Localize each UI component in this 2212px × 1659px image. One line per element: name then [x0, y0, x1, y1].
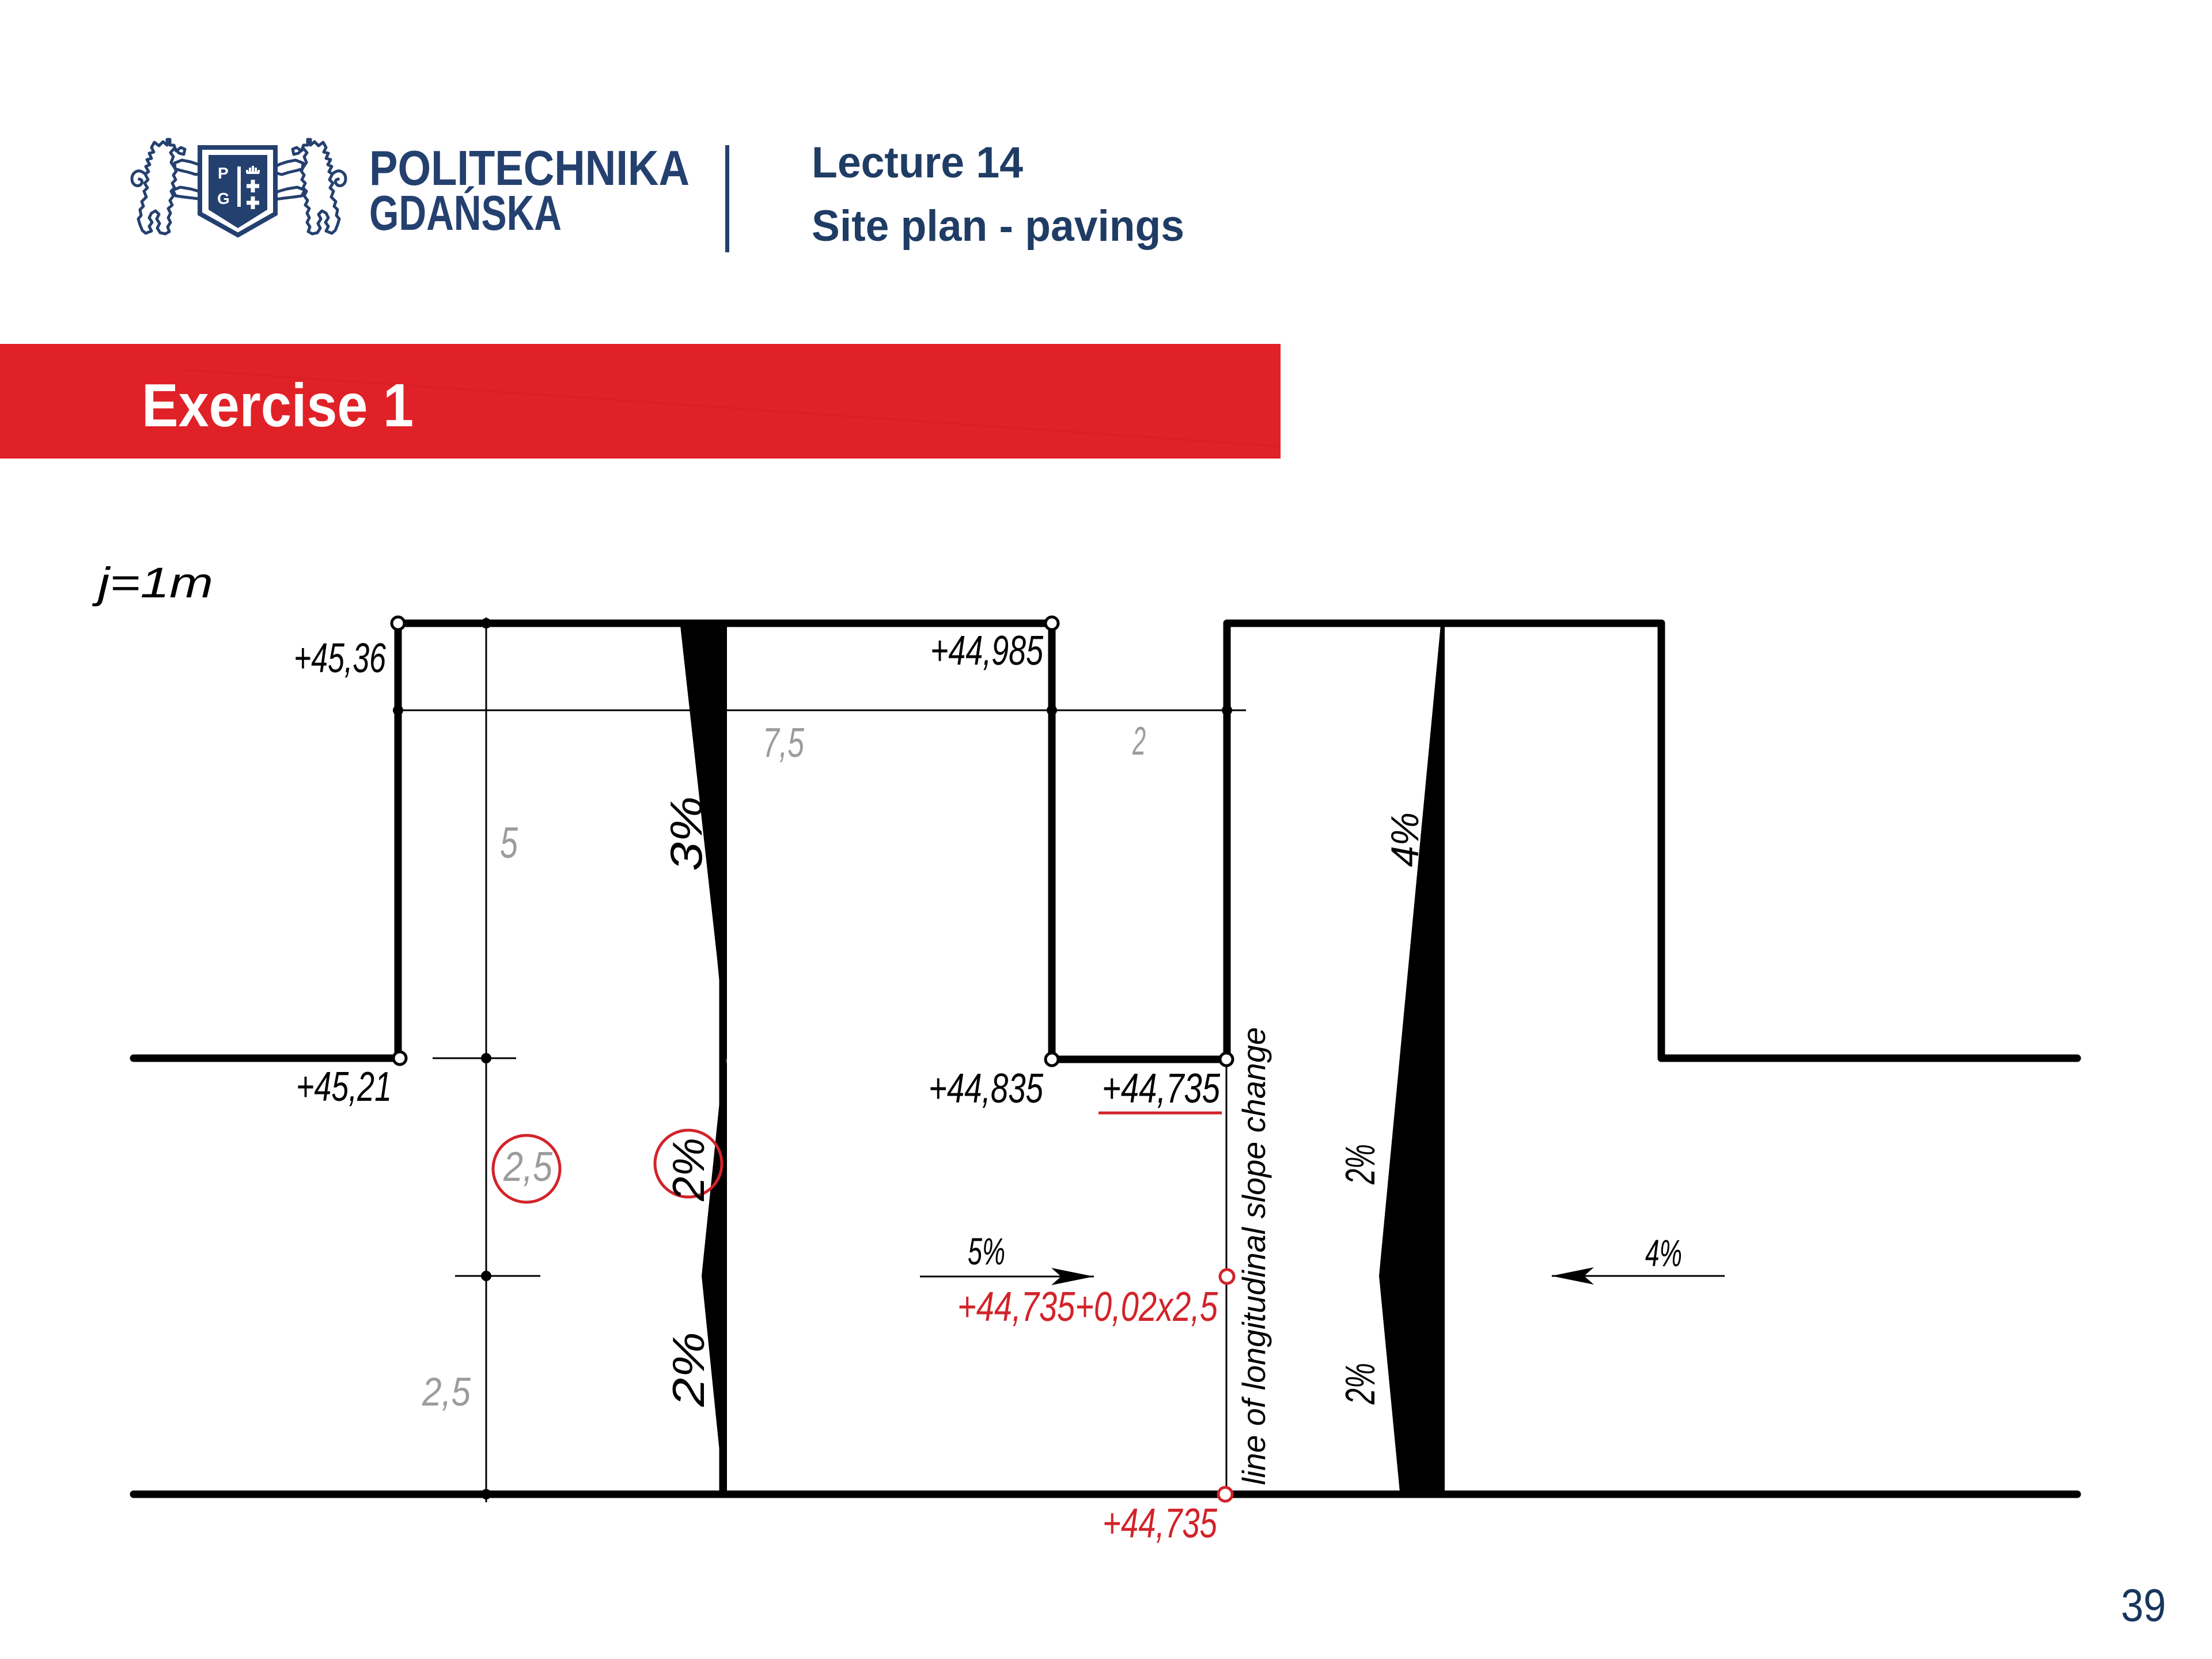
svg-text:line of longitudinal slope cha: line of longitudinal slope change [1236, 1027, 1272, 1485]
svg-text:Exercise 1: Exercise 1 [142, 372, 414, 440]
svg-text:G: G [217, 190, 230, 207]
svg-text:5%: 5% [968, 1230, 1005, 1272]
svg-text:2%: 2% [663, 1138, 714, 1202]
svg-text:2%: 2% [1338, 1144, 1384, 1185]
svg-text:2%: 2% [1338, 1363, 1384, 1405]
svg-text:+44,835: +44,835 [929, 1066, 1044, 1112]
svg-text:5: 5 [500, 819, 518, 868]
svg-text:+44,735: +44,735 [1102, 1066, 1221, 1112]
svg-text:+44,735: +44,735 [1103, 1501, 1218, 1547]
svg-text:+45,21: +45,21 [296, 1064, 392, 1110]
svg-text:4%: 4% [1645, 1232, 1682, 1274]
svg-text:+44,735+0,02x2,5: +44,735+0,02x2,5 [957, 1284, 1218, 1330]
svg-text:2%: 2% [663, 1332, 714, 1407]
svg-text:3%: 3% [661, 796, 711, 871]
svg-text:j=1m: j=1m [92, 559, 213, 607]
svg-text:4%: 4% [1383, 812, 1427, 867]
svg-text:7,5: 7,5 [763, 720, 805, 766]
svg-text:2: 2 [1132, 718, 1146, 763]
svg-text:GDAŃSKA: GDAŃSKA [369, 186, 562, 241]
svg-text:Lecture 14: Lecture 14 [812, 138, 1023, 187]
svg-text:+45,36: +45,36 [294, 635, 387, 681]
svg-text:P: P [218, 164, 229, 182]
svg-text:+44,985: +44,985 [930, 628, 1044, 674]
svg-text:39: 39 [2121, 1580, 2166, 1631]
svg-text:2,5: 2,5 [503, 1144, 553, 1190]
svg-text:Site plan - pavings: Site plan - pavings [812, 202, 1184, 251]
svg-text:2,5: 2,5 [422, 1369, 471, 1414]
